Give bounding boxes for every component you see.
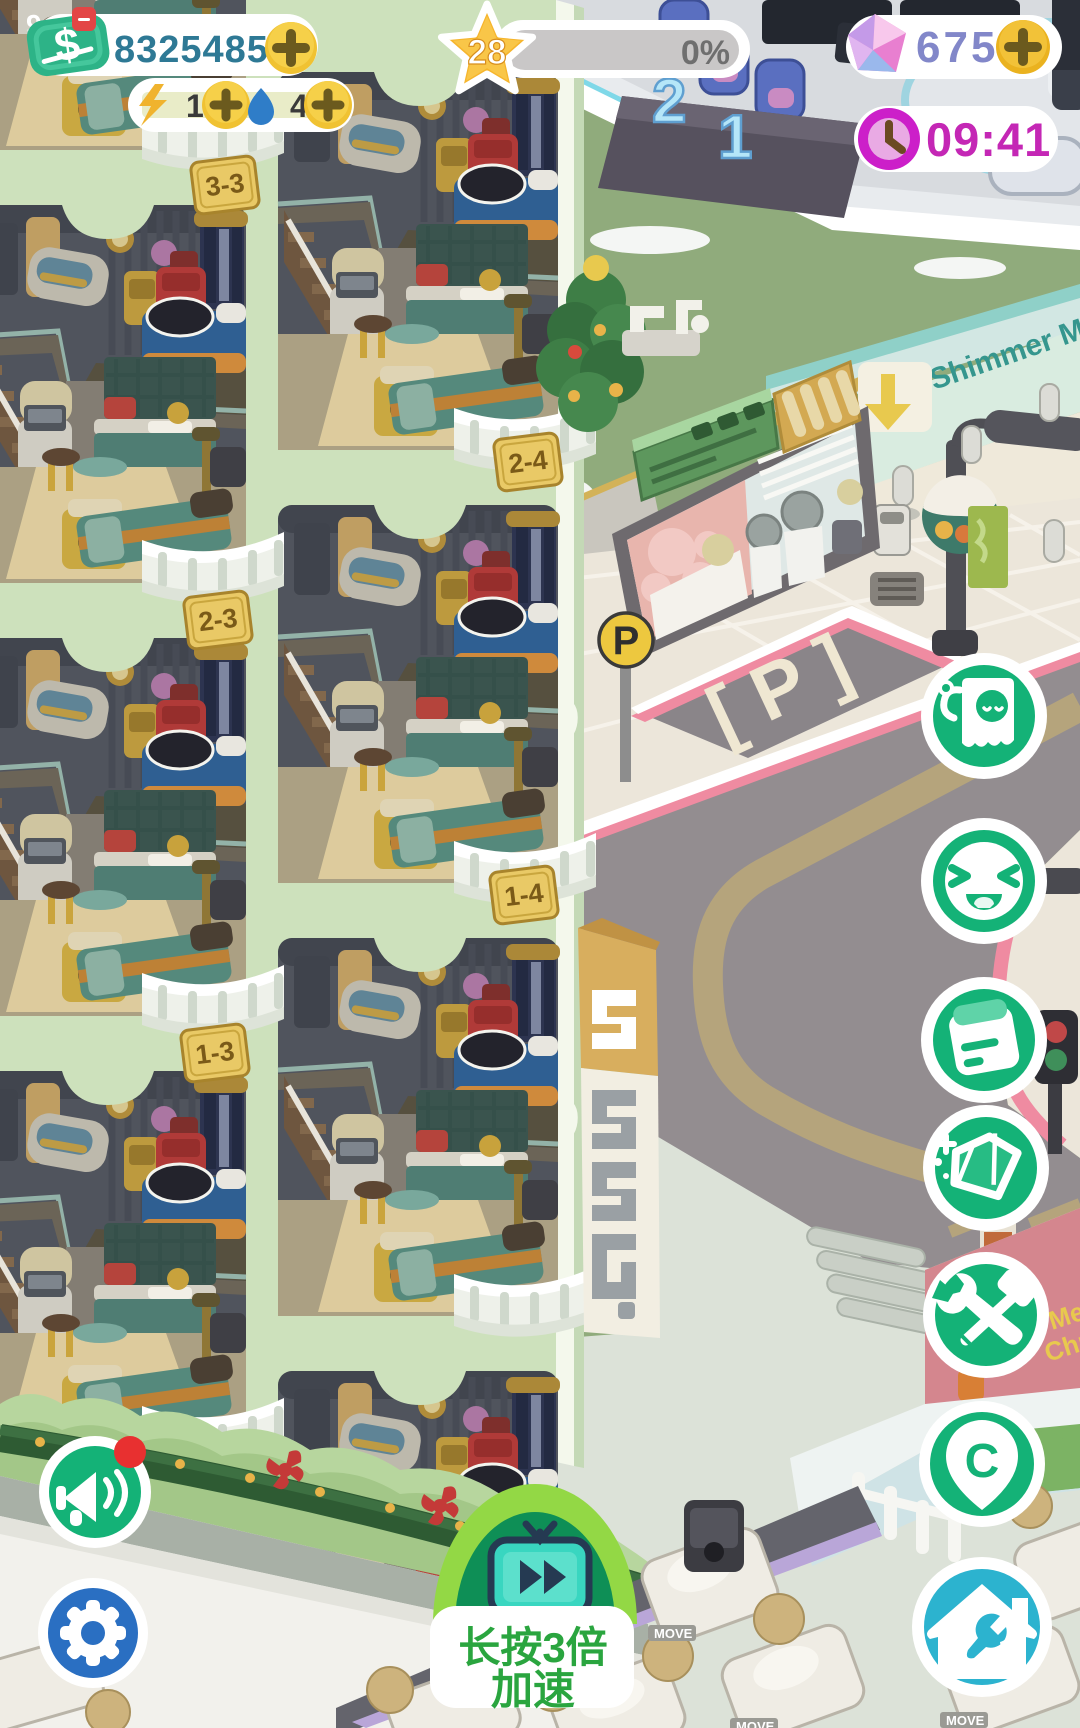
svg-text:C: C xyxy=(965,1435,1000,1488)
svg-text:675: 675 xyxy=(916,23,998,72)
svg-text:09:41: 09:41 xyxy=(926,113,1051,166)
svg-text:1: 1 xyxy=(186,88,204,124)
svg-text:8325485: 8325485 xyxy=(114,29,269,71)
svg-text:28: 28 xyxy=(468,33,507,72)
svg-text:长按3倍: 长按3倍 xyxy=(458,1624,607,1671)
svg-text:加速: 加速 xyxy=(491,1666,575,1713)
svg-text:0%: 0% xyxy=(681,34,730,72)
